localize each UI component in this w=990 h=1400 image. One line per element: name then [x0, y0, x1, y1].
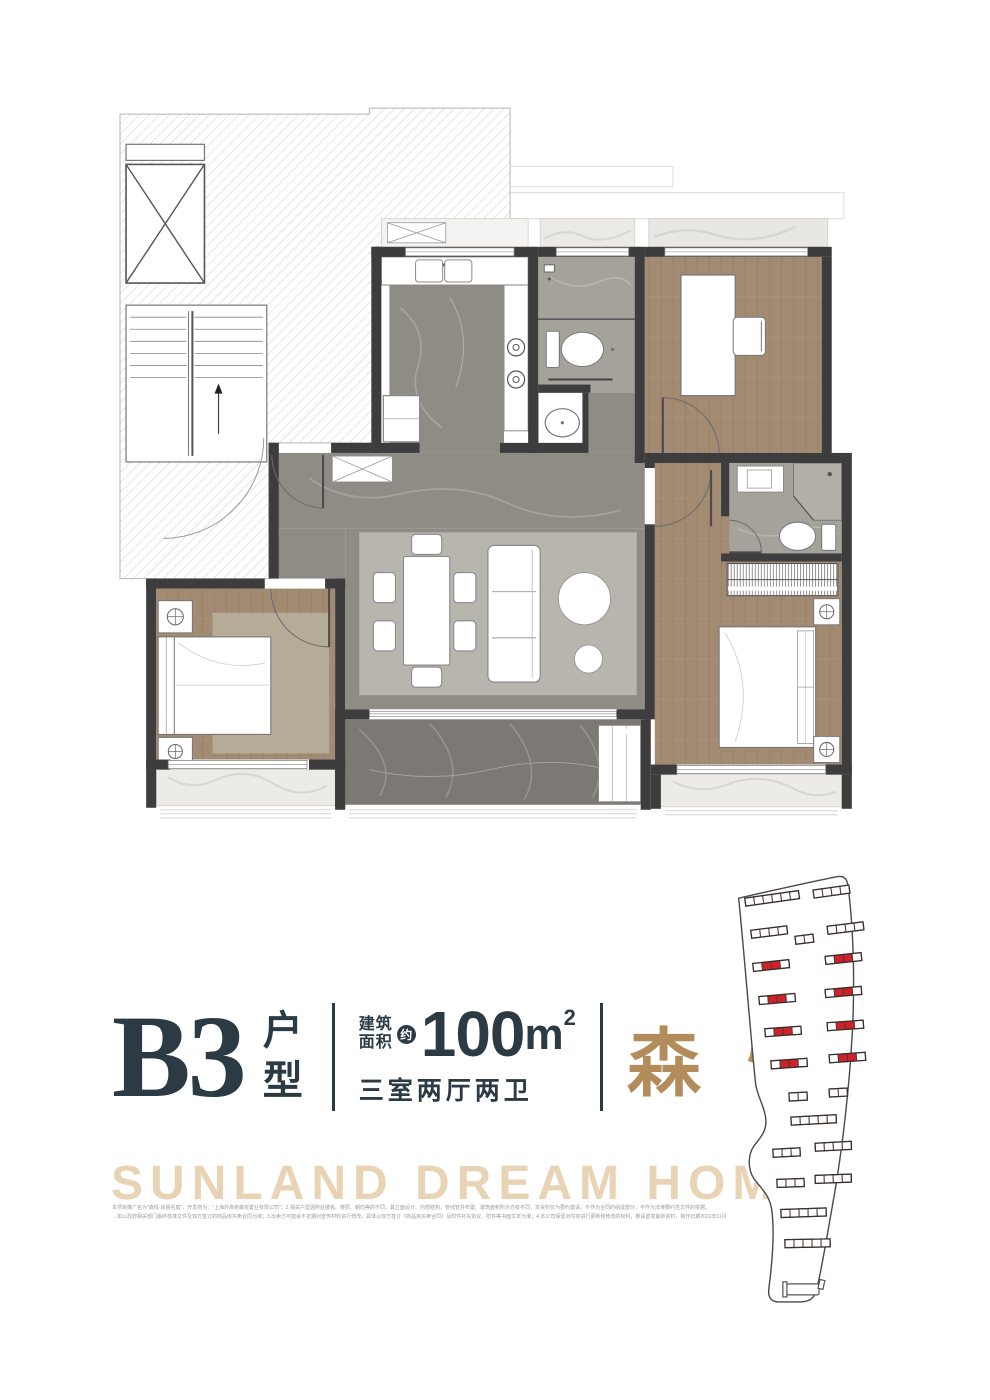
area-value: 100 [421, 1007, 525, 1061]
area-label: 建筑 面积 [359, 1016, 393, 1053]
wardrobe [727, 564, 838, 596]
sofa [488, 545, 540, 682]
area-unit: m 2 [525, 1015, 576, 1055]
coffee-table-small [574, 645, 602, 673]
site-plan [724, 868, 896, 1320]
slogan-text: SUNLAND DREAM HOME [111, 1156, 818, 1211]
master-bedroom [655, 463, 842, 765]
area-unit-m: m [525, 1015, 564, 1055]
divider-line [600, 1003, 603, 1111]
disclaimer-line-1: 本项目推广名为"森悦·启晨名庭"，开发商为："上海外高桥森悦置业有限公司"；2.… [112, 1204, 742, 1213]
area-label-line2: 面积 [359, 1034, 393, 1052]
elevator-icon [126, 144, 204, 283]
bedroom-left [156, 589, 335, 766]
kitchen [381, 257, 528, 453]
area-info: 建筑 面积 约 100 m 2 三室两厅两卫 [359, 1007, 576, 1106]
disclaimer-line-2: →如以政府相关部门最终核准文件及双方签订的商品房买卖合同为准；3.出卖方可能会不… [112, 1213, 742, 1222]
room-layout-text: 三室两厅两卫 [359, 1071, 576, 1107]
title-block: B3 户型 建筑 面积 约 100 m 2 三室两厅两卫 森悦 [112, 992, 821, 1122]
area-unit-exponent: 2 [564, 1005, 576, 1031]
approx-badge: 约 [397, 1025, 416, 1044]
top-window-bands [381, 219, 827, 247]
divider-line [332, 1003, 335, 1111]
bed [158, 637, 271, 735]
unit-code: B3 [112, 1005, 244, 1109]
living-balcony [345, 711, 641, 818]
study-bedroom [645, 257, 822, 453]
floor-plan [118, 106, 882, 830]
master-balcony [661, 775, 842, 815]
bathroom-2 [729, 463, 842, 553]
poster-page: B3 户型 建筑 面积 约 100 m 2 三室两厅两卫 森悦 SUNLAND … [0, 0, 990, 1400]
coffee-table-large [558, 573, 610, 625]
unit-code-suffix: 户型 [250, 1009, 308, 1109]
bathroom-1 [538, 257, 635, 393]
master-bed [719, 627, 816, 748]
left-balcony [156, 770, 335, 818]
area-label-line1: 建筑 [359, 1016, 393, 1034]
